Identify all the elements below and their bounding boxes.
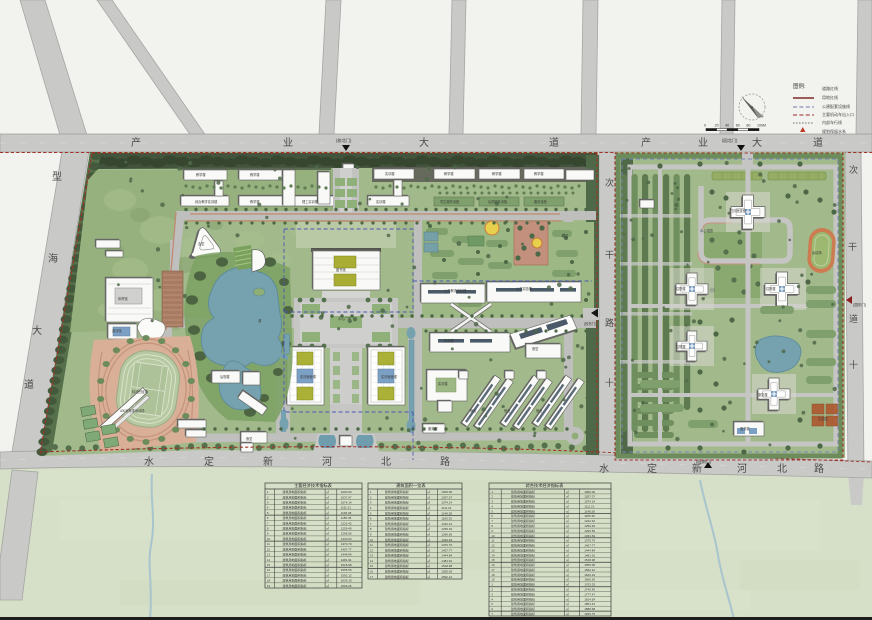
svg-text:1074.14: 1074.14 [341, 501, 352, 505]
svg-text:实训楼: 实训楼 [385, 171, 395, 176]
svg-text:1333.63: 1333.63 [584, 534, 595, 538]
svg-text:1814.54: 1814.54 [584, 597, 595, 601]
svg-text:次: 次 [605, 177, 614, 188]
svg-text:㎡: ㎡ [427, 559, 430, 563]
svg-text:㎡: ㎡ [566, 602, 569, 606]
svg-text:(园南门): (园南门) [696, 458, 712, 465]
svg-text:1777.47: 1777.47 [584, 592, 595, 596]
svg-text:服务设施: 服务设施 [534, 199, 548, 204]
svg-text:公建配套设施线: 公建配套设施线 [822, 103, 850, 109]
svg-text:路: 路 [814, 462, 824, 475]
svg-text:㎡: ㎡ [566, 568, 569, 572]
svg-text:1740.40: 1740.40 [584, 588, 595, 592]
svg-text:服务楼: 服务楼 [428, 426, 438, 431]
svg-text:14: 14 [370, 559, 374, 563]
svg-text:㎡: ㎡ [566, 597, 569, 601]
svg-text:1111.21: 1111.21 [441, 506, 452, 510]
svg-text:17: 17 [267, 573, 271, 577]
svg-text:15: 15 [267, 563, 271, 567]
svg-text:理工实训楼: 理工实训楼 [302, 199, 319, 204]
svg-text:湖: 湖 [258, 318, 261, 323]
svg-text:北: 北 [381, 456, 391, 468]
svg-text:建筑用地面积指标: 建筑用地面积指标 [283, 510, 307, 515]
svg-text:㎡: ㎡ [566, 529, 569, 533]
svg-text:建筑用地面积指标: 建筑用地面积指标 [511, 508, 535, 513]
svg-text:教学楼: 教学楼 [250, 172, 260, 177]
svg-text:1481.91: 1481.91 [341, 558, 352, 562]
svg-text:㎡: ㎡ [427, 517, 430, 521]
svg-text:建筑用地面积指标: 建筑用地面积指标 [511, 543, 535, 548]
svg-text:㎡: ㎡ [326, 568, 329, 572]
svg-text:建筑用地面积指标: 建筑用地面积指标 [385, 558, 409, 563]
svg-text:13: 13 [267, 553, 271, 557]
svg-text:㎡: ㎡ [326, 579, 329, 583]
svg-text:1629.19: 1629.19 [584, 573, 595, 577]
svg-text:1074.14: 1074.14 [441, 501, 452, 505]
svg-text:门诊医技楼: 门诊医技楼 [730, 208, 747, 213]
svg-text:㎡: ㎡ [566, 553, 569, 557]
svg-text:㎡: ㎡ [326, 516, 329, 520]
svg-text:建筑用地面积指标: 建筑用地面积指标 [283, 515, 307, 520]
svg-text:1629.19: 1629.19 [341, 579, 352, 583]
svg-text:建筑用地面积指标: 建筑用地面积指标 [283, 567, 307, 572]
svg-text:实训宿舍楼: 实训宿舍楼 [300, 374, 317, 379]
svg-text:1555.05: 1555.05 [341, 568, 352, 572]
svg-text:1592.12: 1592.12 [441, 575, 452, 579]
svg-text:10: 10 [267, 537, 271, 541]
svg-text:1555.05: 1555.05 [584, 563, 595, 567]
svg-text:1222.42: 1222.42 [584, 519, 595, 523]
svg-text:产: 产 [641, 136, 651, 149]
svg-text:1888.68: 1888.68 [584, 607, 595, 611]
svg-text:型: 型 [52, 170, 62, 183]
svg-text:(园北门): (园北门) [722, 137, 738, 144]
svg-text:建筑用地面积指标: 建筑用地面积指标 [511, 606, 535, 611]
svg-text:12: 12 [370, 548, 374, 552]
svg-text:1370.70: 1370.70 [341, 542, 352, 546]
svg-text:建筑用地面积指标: 建筑用地面积指标 [283, 500, 307, 505]
svg-text:12: 12 [267, 547, 271, 551]
svg-text:干: 干 [605, 250, 614, 260]
svg-text:16: 16 [267, 568, 271, 572]
svg-text:新: 新 [263, 455, 273, 468]
svg-text:主要经济技术指标表: 主要经济技术指标表 [294, 482, 333, 489]
svg-text:1333.63: 1333.63 [341, 537, 352, 541]
svg-text:十: 十 [605, 377, 614, 388]
svg-text:综合教学实训楼: 综合教学实训楼 [195, 199, 218, 204]
svg-text:建筑用地面积指标: 建筑用地面积指标 [283, 583, 307, 588]
svg-text:100M: 100M [757, 124, 766, 128]
svg-text:㎡: ㎡ [326, 563, 329, 567]
svg-text:教学楼: 教学楼 [492, 171, 502, 176]
svg-text:水: 水 [144, 456, 154, 468]
svg-text:河: 河 [737, 463, 747, 475]
svg-text:1555.05: 1555.05 [441, 570, 452, 574]
svg-text:1000.00: 1000.00 [584, 490, 595, 494]
svg-text:大: 大 [419, 136, 429, 149]
svg-text:13: 13 [370, 554, 374, 558]
svg-text:㎡: ㎡ [326, 553, 329, 557]
svg-text:水: 水 [599, 463, 609, 475]
svg-text:㎡: ㎡ [566, 563, 569, 567]
svg-text:建筑用地面积指标: 建筑用地面积指标 [283, 552, 307, 557]
svg-text:60: 60 [736, 124, 740, 128]
svg-text:㎡: ㎡ [326, 542, 329, 546]
svg-text:用地红线: 用地红线 [822, 94, 838, 100]
svg-text:建筑用地面积指标: 建筑用地面积指标 [283, 505, 307, 510]
svg-text:宿舍: 宿舍 [504, 408, 511, 413]
svg-text:实训楼: 实训楼 [438, 381, 448, 386]
svg-text:运动场: 运动场 [812, 250, 822, 255]
svg-text:㎡: ㎡ [427, 495, 430, 499]
svg-text:㎡: ㎡ [566, 524, 569, 528]
svg-text:康复楼: 康复楼 [758, 392, 768, 397]
svg-text:㎡: ㎡ [427, 543, 430, 547]
svg-text:道: 道 [549, 136, 559, 149]
svg-text:建筑用地面积指标: 建筑用地面积指标 [385, 569, 409, 574]
svg-text:0: 0 [704, 124, 706, 128]
svg-text:㎡: ㎡ [427, 506, 430, 510]
svg-text:建筑用地面积指标: 建筑用地面积指标 [511, 577, 535, 582]
svg-text:1185.35: 1185.35 [441, 517, 452, 521]
svg-text:17: 17 [491, 568, 495, 572]
svg-text:建筑用地面积指标: 建筑用地面积指标 [385, 516, 409, 521]
svg-text:建筑用地面积指标: 建筑用地面积指标 [283, 494, 307, 499]
svg-text:干: 干 [848, 242, 857, 252]
svg-text:建筑用地面积指标: 建筑用地面积指标 [385, 542, 409, 547]
svg-text:17: 17 [370, 575, 374, 579]
svg-text:㎡: ㎡ [326, 521, 329, 525]
svg-text:中心花园: 中心花园 [700, 228, 713, 233]
svg-text:1185.35: 1185.35 [341, 516, 352, 520]
svg-text:规划保留水系: 规划保留水系 [822, 128, 846, 134]
svg-text:建筑用地面积指标: 建筑用地面积指标 [385, 505, 409, 510]
svg-text:住院楼: 住院楼 [676, 344, 686, 349]
svg-text:㎡: ㎡ [427, 570, 430, 574]
svg-text:食堂: 食堂 [532, 346, 538, 351]
svg-text:1074.14: 1074.14 [584, 500, 595, 504]
svg-text:服务楼: 服务楼 [740, 426, 750, 431]
svg-text:㎡: ㎡ [427, 533, 430, 537]
svg-text:㎡: ㎡ [326, 547, 329, 551]
svg-text:建筑用地面积指标: 建筑用地面积指标 [385, 494, 409, 499]
svg-text:1370.70: 1370.70 [441, 543, 452, 547]
svg-text:㎡: ㎡ [427, 548, 430, 552]
svg-text:1222.42: 1222.42 [341, 521, 352, 525]
svg-text:建筑用地面积指标: 建筑用地面积指标 [511, 513, 535, 518]
svg-text:12: 12 [491, 544, 495, 548]
svg-text:食堂: 食堂 [246, 436, 252, 441]
svg-text:次: 次 [849, 164, 858, 175]
svg-text:产: 产 [131, 136, 141, 149]
svg-text:㎡: ㎡ [427, 564, 430, 568]
svg-text:建筑用地面积指标: 建筑用地面积指标 [283, 520, 307, 525]
svg-text:路: 路 [440, 455, 450, 468]
svg-text:建筑用地面积指标: 建筑用地面积指标 [511, 494, 535, 499]
svg-text:1518.98: 1518.98 [441, 564, 452, 568]
svg-text:1666.26: 1666.26 [584, 578, 595, 582]
svg-text:㎡: ㎡ [326, 495, 329, 499]
svg-text:道: 道 [849, 313, 858, 324]
svg-text:建筑用地面积指标: 建筑用地面积指标 [385, 537, 409, 542]
svg-text:生态园: 生态园 [818, 416, 828, 421]
svg-text:主要机动车出入口: 主要机动车出入口 [822, 111, 854, 117]
svg-text:建筑用地面积指标: 建筑用地面积指标 [511, 587, 535, 592]
svg-text:建筑用地面积指标: 建筑用地面积指标 [283, 541, 307, 546]
svg-text:公共教学实验楼: 公共教学实验楼 [444, 288, 467, 293]
svg-text:建筑用地面积指标: 建筑用地面积指标 [385, 574, 409, 579]
svg-text:大: 大 [32, 324, 42, 337]
svg-text:(校北门): (校北门) [336, 137, 352, 144]
svg-text:建筑用地面积指标: 建筑用地面积指标 [511, 518, 535, 523]
svg-text:建筑用地面积指标: 建筑用地面积指标 [385, 553, 409, 558]
svg-text:㎡: ㎡ [427, 575, 430, 579]
svg-text:15: 15 [370, 564, 374, 568]
svg-text:19: 19 [491, 578, 495, 582]
svg-text:建筑用地面积指标: 建筑用地面积指标 [283, 526, 307, 531]
svg-text:1370.70: 1370.70 [584, 539, 595, 543]
svg-text:道: 道 [24, 378, 34, 391]
svg-text:建筑用地面积指标: 建筑用地面积指标 [385, 532, 409, 537]
svg-text:㎡: ㎡ [326, 527, 329, 531]
svg-text:建筑用地面积指标: 建筑用地面积指标 [283, 489, 307, 494]
svg-text:标准田径场: 标准田径场 [132, 389, 148, 394]
svg-text:㎡: ㎡ [566, 592, 569, 596]
svg-text:1259.49: 1259.49 [584, 524, 595, 528]
svg-text:㎡: ㎡ [566, 519, 569, 523]
svg-text:游泳馆: 游泳馆 [112, 328, 122, 333]
svg-text:1000.00: 1000.00 [341, 490, 352, 494]
svg-text:1111.21: 1111.21 [341, 506, 352, 510]
svg-text:会堂: 会堂 [198, 241, 204, 246]
svg-text:13: 13 [491, 548, 495, 552]
svg-text:1481.91: 1481.91 [584, 553, 595, 557]
svg-text:建筑用地面积指标: 建筑用地面积指标 [283, 531, 307, 536]
svg-text:住院楼: 住院楼 [766, 286, 776, 291]
svg-text:㎡: ㎡ [566, 509, 569, 513]
svg-text:1111.21: 1111.21 [584, 505, 595, 509]
svg-text:实验楼: 实验楼 [444, 338, 454, 343]
svg-text:80: 80 [746, 124, 750, 128]
svg-text:㎡: ㎡ [566, 573, 569, 577]
svg-text:1444.84: 1444.84 [441, 554, 452, 558]
svg-text:㎡: ㎡ [566, 514, 569, 518]
svg-text:㎡: ㎡ [566, 548, 569, 552]
svg-text:路: 路 [605, 317, 614, 328]
svg-text:宿舍: 宿舍 [470, 408, 477, 413]
svg-text:教学楼: 教学楼 [444, 171, 454, 176]
svg-text:建筑用地面积指标: 建筑用地面积指标 [511, 504, 535, 509]
svg-text:建筑用地面积指标: 建筑用地面积指标 [385, 526, 409, 531]
svg-text:㎡: ㎡ [326, 532, 329, 536]
svg-text:十: 十 [849, 359, 858, 370]
svg-text:1296.56: 1296.56 [441, 533, 452, 537]
svg-text:建筑用地面积指标: 建筑用地面积指标 [511, 499, 535, 504]
svg-text:11: 11 [491, 539, 494, 543]
svg-text:1296.56: 1296.56 [341, 532, 352, 536]
svg-text:㎡: ㎡ [326, 584, 329, 588]
svg-text:建筑用地面积指标: 建筑用地面积指标 [511, 562, 535, 567]
svg-text:㎡: ㎡ [427, 511, 430, 515]
svg-text:建筑用地面积指标: 建筑用地面积指标 [283, 562, 307, 567]
svg-text:1037.07: 1037.07 [441, 495, 452, 499]
svg-text:建筑用地面积指标: 建筑用地面积指标 [385, 500, 409, 505]
svg-text:㎡: ㎡ [566, 505, 569, 509]
svg-text:16: 16 [370, 570, 374, 574]
svg-text:㎡: ㎡ [566, 500, 569, 504]
svg-text:㎡: ㎡ [326, 490, 329, 494]
svg-text:㎡: ㎡ [326, 537, 329, 541]
svg-text:道: 道 [813, 136, 823, 149]
svg-text:㎡: ㎡ [326, 501, 329, 505]
svg-text:1296.56: 1296.56 [584, 529, 595, 533]
svg-text:实训宿舍楼: 实训宿舍楼 [381, 374, 398, 379]
svg-text:建筑用地面积指标: 建筑用地面积指标 [511, 523, 535, 528]
svg-text:业: 业 [698, 137, 708, 149]
svg-text:1407.77: 1407.77 [584, 544, 595, 548]
svg-text:建筑用地面积指标: 建筑用地面积指标 [511, 552, 535, 557]
svg-text:㎡: ㎡ [427, 554, 430, 558]
svg-text:㎡: ㎡ [566, 558, 569, 562]
svg-text:20: 20 [715, 124, 719, 128]
svg-text:㎡: ㎡ [427, 490, 430, 494]
svg-text:1851.61: 1851.61 [584, 602, 595, 606]
svg-text:建筑用地面积指标: 建筑用地面积指标 [511, 538, 535, 543]
svg-text:㎡: ㎡ [566, 534, 569, 538]
svg-text:19: 19 [267, 584, 271, 588]
svg-text:建筑用地面积指标: 建筑用地面积指标 [511, 567, 535, 572]
svg-text:建筑用地面积指标: 建筑用地面积指标 [511, 557, 535, 562]
svg-text:建筑用地面积指标: 建筑用地面积指标 [385, 563, 409, 568]
svg-text:建筑用地面积指标: 建筑用地面积指标 [511, 582, 535, 587]
svg-text:㎡: ㎡ [326, 506, 329, 510]
svg-text:1185.35: 1185.35 [584, 514, 595, 518]
svg-text:1444.84: 1444.84 [341, 553, 352, 557]
svg-text:10: 10 [491, 534, 495, 538]
svg-text:㎡: ㎡ [427, 501, 430, 505]
svg-text:18: 18 [267, 579, 271, 583]
svg-text:1925.75: 1925.75 [584, 612, 595, 616]
svg-text:10: 10 [370, 538, 374, 542]
svg-text:1222.42: 1222.42 [441, 522, 452, 526]
svg-text:1148.28: 1148.28 [341, 511, 352, 515]
svg-text:海: 海 [48, 252, 58, 265]
svg-text:1407.77: 1407.77 [341, 547, 352, 551]
svg-text:图书馆: 图书馆 [336, 267, 346, 272]
svg-text:建筑用地面积指标: 建筑用地面积指标 [283, 572, 307, 577]
svg-text:400米标准运动场: 400米标准运动场 [120, 408, 144, 413]
svg-text:宿舍: 宿舍 [536, 408, 543, 413]
svg-text:北: 北 [777, 463, 787, 475]
svg-text:1000.00: 1000.00 [441, 490, 452, 494]
svg-text:大: 大 [752, 136, 762, 149]
svg-text:㎡: ㎡ [566, 607, 569, 611]
svg-text:1259.49: 1259.49 [341, 527, 352, 531]
svg-text:1148.28: 1148.28 [441, 511, 452, 515]
svg-text:建筑用地面积指标: 建筑用地面积指标 [511, 596, 535, 601]
svg-text:内部车行线: 内部车行线 [822, 119, 842, 125]
svg-text:18: 18 [491, 573, 495, 577]
svg-text:图例:: 图例: [793, 82, 806, 90]
svg-text:建筑用地面积指标: 建筑用地面积指标 [385, 489, 409, 494]
svg-text:建筑用地面积指标: 建筑用地面积指标 [385, 521, 409, 526]
svg-text:㎡: ㎡ [427, 522, 430, 526]
svg-text:建筑用地面积指标: 建筑用地面积指标 [511, 489, 535, 494]
svg-text:㎡: ㎡ [427, 538, 430, 542]
svg-text:建筑用地面积指标: 建筑用地面积指标 [511, 611, 535, 616]
svg-text:建筑用地面积指标: 建筑用地面积指标 [511, 601, 535, 606]
svg-text:建筑用地面积指标: 建筑用地面积指标 [511, 533, 535, 538]
svg-text:建筑用地面积指标: 建筑用地面积指标 [283, 578, 307, 583]
svg-text:定: 定 [204, 455, 214, 468]
svg-text:11: 11 [370, 543, 373, 547]
svg-text:建筑用地面积指标: 建筑用地面积指标 [511, 547, 535, 552]
svg-text:1148.28: 1148.28 [584, 509, 595, 513]
svg-text:1481.91: 1481.91 [441, 559, 452, 563]
svg-text:1037.07: 1037.07 [341, 495, 352, 499]
svg-text:1703.33: 1703.33 [584, 583, 595, 587]
svg-text:建筑面积一览表: 建筑面积一览表 [396, 482, 426, 489]
svg-text:综合技术经济指标表: 综合技术经济指标表 [526, 482, 565, 489]
svg-text:建筑用地面积指标: 建筑用地面积指标 [283, 557, 307, 562]
svg-text:1518.98: 1518.98 [341, 563, 352, 567]
svg-text:建筑用地面积指标: 建筑用地面积指标 [511, 572, 535, 577]
svg-text:㎡: ㎡ [326, 511, 329, 515]
svg-text:建筑用地面积指标: 建筑用地面积指标 [385, 547, 409, 552]
svg-text:15: 15 [491, 558, 495, 562]
svg-text:㎡: ㎡ [427, 527, 430, 531]
svg-text:1037.07: 1037.07 [584, 495, 595, 499]
svg-text:(校东门): (校东门) [584, 321, 596, 326]
svg-text:定: 定 [647, 462, 657, 475]
svg-text:1592.12: 1592.12 [584, 568, 595, 572]
svg-text:1518.98: 1518.98 [584, 558, 595, 562]
svg-text:㎡: ㎡ [566, 490, 569, 494]
svg-text:㎡: ㎡ [566, 539, 569, 543]
svg-text:㎡: ㎡ [566, 588, 569, 592]
svg-text:体育馆: 体育馆 [118, 296, 128, 301]
svg-text:河: 河 [322, 456, 332, 468]
svg-text:㎡: ㎡ [326, 573, 329, 577]
svg-text:教学楼: 教学楼 [196, 172, 206, 177]
svg-text:16: 16 [491, 563, 495, 567]
svg-text:14: 14 [491, 553, 495, 557]
svg-text:教学楼: 教学楼 [534, 171, 544, 176]
svg-text:业: 业 [283, 137, 293, 149]
svg-text:1259.49: 1259.49 [441, 527, 452, 531]
svg-text:学生服务设施: 学生服务设施 [440, 199, 460, 204]
svg-text:㎡: ㎡ [566, 495, 569, 499]
svg-text:实训楼: 实训楼 [376, 199, 386, 204]
svg-text:建筑用地面积指标: 建筑用地面积指标 [283, 546, 307, 551]
svg-text:建筑用地面积指标: 建筑用地面积指标 [385, 510, 409, 515]
svg-text:㎡: ㎡ [566, 578, 569, 582]
svg-text:㎡: ㎡ [566, 612, 569, 616]
svg-text:1592.12: 1592.12 [341, 573, 352, 577]
svg-text:40: 40 [725, 124, 729, 128]
svg-text:道路红线: 道路红线 [822, 85, 838, 91]
svg-text:后勤楼: 后勤楼 [220, 374, 230, 379]
svg-text:建筑用地面积指标: 建筑用地面积指标 [511, 591, 535, 596]
svg-text:建筑用地面积指标: 建筑用地面积指标 [283, 536, 307, 541]
svg-text:㎡: ㎡ [566, 544, 569, 548]
svg-text:㎡: ㎡ [326, 558, 329, 562]
svg-text:1666.26: 1666.26 [341, 584, 352, 588]
svg-text:11: 11 [267, 542, 270, 546]
svg-text:建筑用地面积指标: 建筑用地面积指标 [511, 528, 535, 533]
svg-text:公共实验楼: 公共实验楼 [516, 286, 533, 291]
svg-text:14: 14 [267, 558, 271, 562]
